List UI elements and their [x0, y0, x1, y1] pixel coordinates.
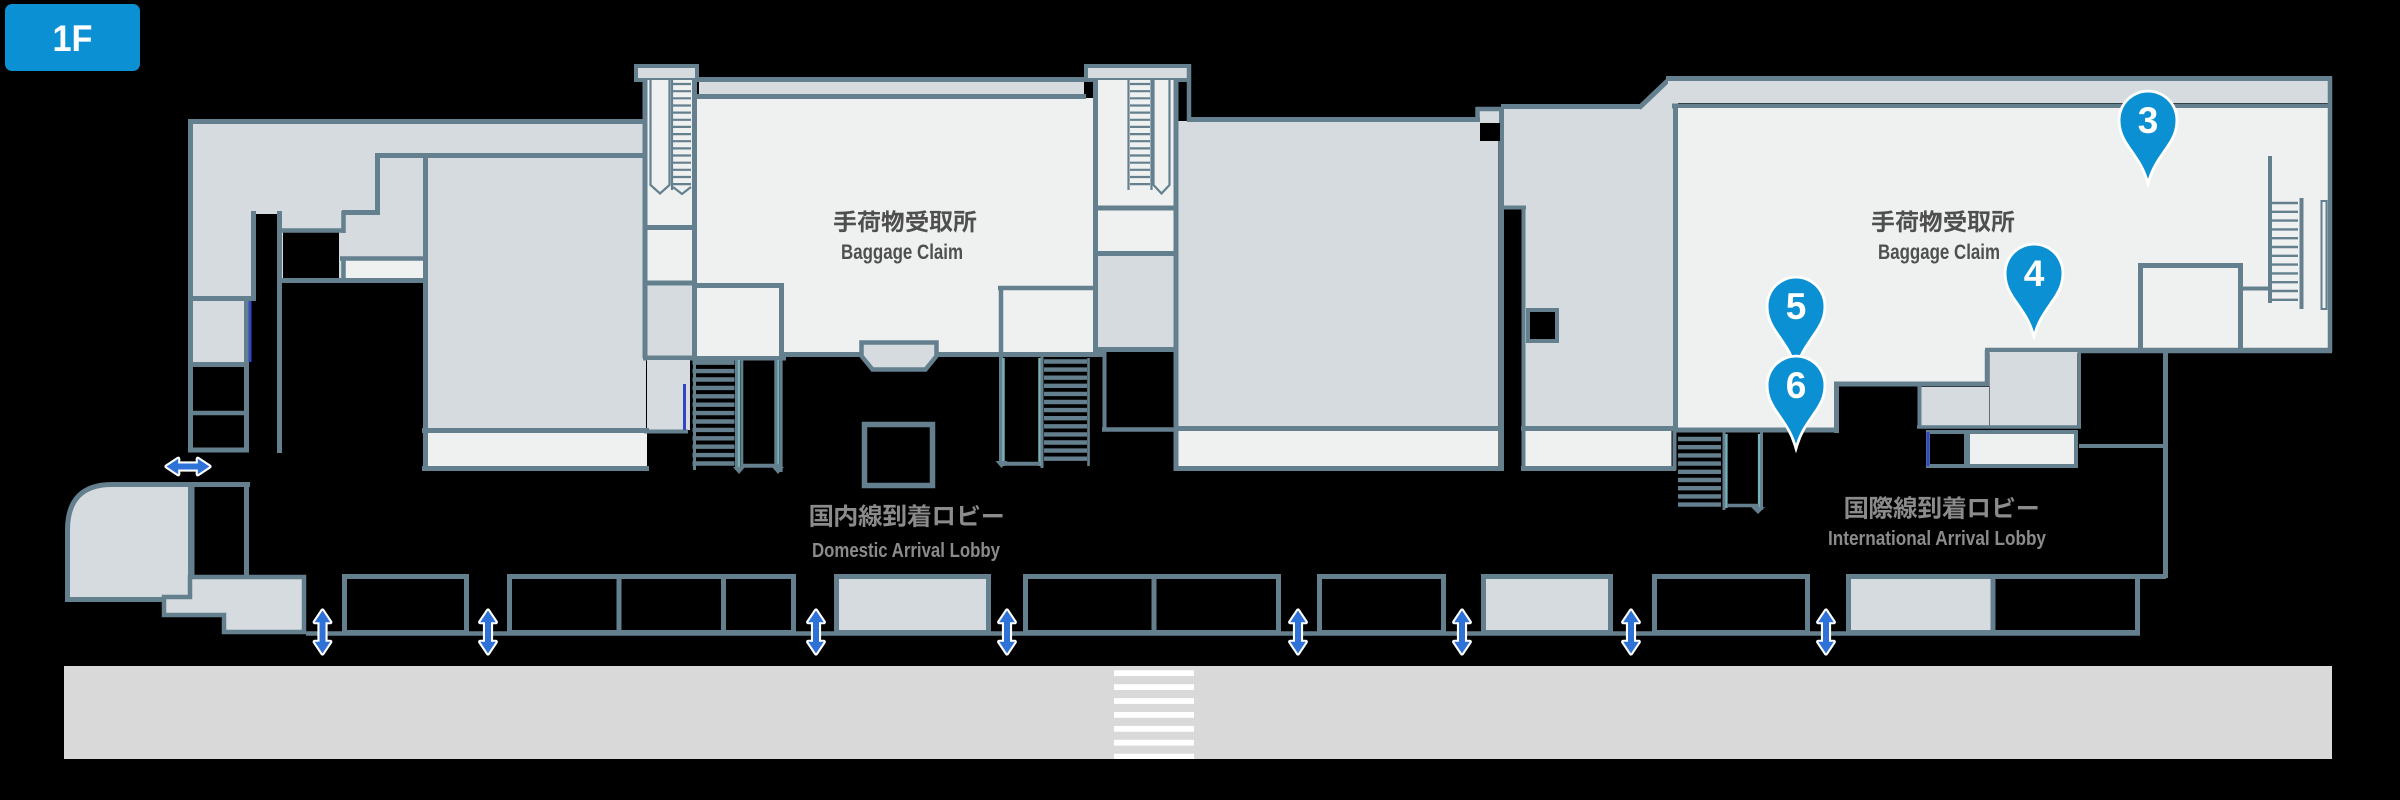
svg-text:Baggage Claim: Baggage Claim: [1878, 241, 2000, 264]
svg-text:4: 4: [2024, 253, 2045, 294]
svg-text:Baggage Claim: Baggage Claim: [841, 241, 963, 264]
svg-text:5: 5: [1786, 286, 1807, 327]
svg-text:6: 6: [1786, 365, 1807, 406]
svg-text:1F: 1F: [53, 18, 93, 59]
svg-text:3: 3: [2138, 100, 2159, 141]
svg-text:Domestic Arrival Lobby: Domestic Arrival Lobby: [812, 539, 1000, 562]
svg-text:International Arrival Lobby: International Arrival Lobby: [1828, 527, 2046, 550]
